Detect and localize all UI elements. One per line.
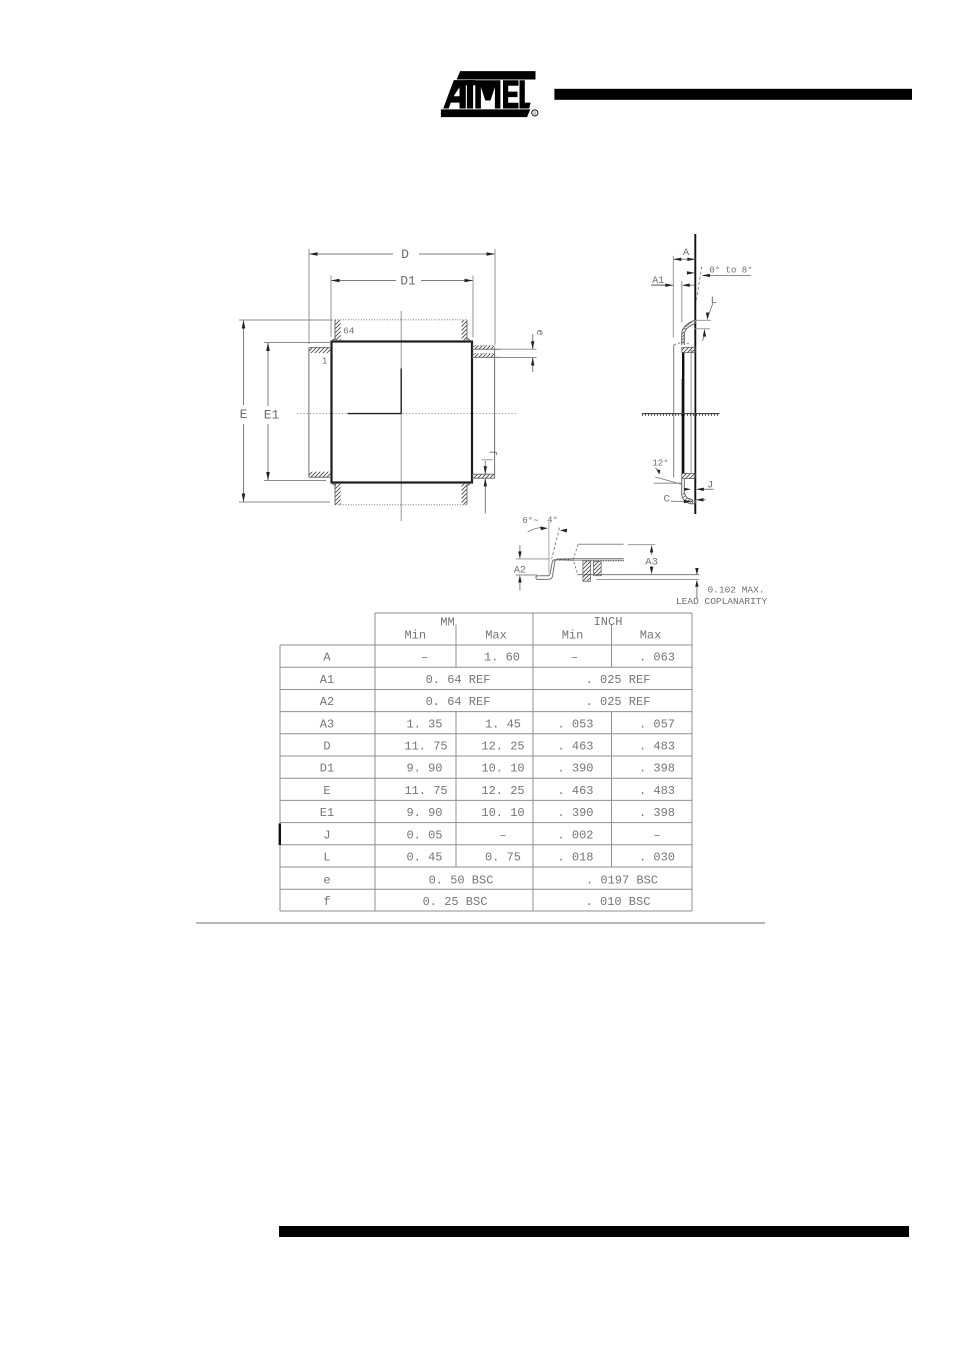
svg-text:1. 45: 1. 45 bbox=[485, 717, 521, 731]
svg-text:A2: A2 bbox=[514, 565, 526, 576]
svg-text:f: f bbox=[323, 895, 330, 909]
svg-text:A2: A2 bbox=[320, 695, 334, 709]
svg-text:e: e bbox=[323, 873, 330, 887]
svg-text:e: e bbox=[533, 329, 544, 335]
svg-text:0.102 MAX.: 0.102 MAX. bbox=[707, 584, 764, 595]
svg-text:9. 90: 9. 90 bbox=[406, 806, 442, 820]
svg-text:E: E bbox=[240, 407, 248, 422]
svg-text:A3: A3 bbox=[645, 557, 658, 569]
svg-text:. 030: . 030 bbox=[639, 851, 675, 865]
svg-text:0. 75: 0. 75 bbox=[485, 851, 521, 865]
svg-text:. 025 REF: . 025 REF bbox=[586, 673, 651, 687]
svg-text:0. 64 REF: 0. 64 REF bbox=[426, 695, 491, 709]
svg-text:MM: MM bbox=[440, 616, 454, 630]
svg-text:. 053: . 053 bbox=[557, 717, 593, 731]
svg-text:A3: A3 bbox=[320, 717, 334, 731]
svg-text:12. 25: 12. 25 bbox=[481, 784, 524, 798]
svg-text:L: L bbox=[711, 295, 717, 307]
svg-text:J: J bbox=[323, 828, 330, 842]
svg-text:. 483: . 483 bbox=[639, 740, 675, 754]
svg-text:f: f bbox=[486, 450, 498, 456]
svg-text:LEAD COPLANARITY: LEAD COPLANARITY bbox=[676, 596, 768, 607]
svg-text:–: – bbox=[499, 828, 506, 842]
svg-text:. 390: . 390 bbox=[557, 762, 593, 776]
svg-text:0. 50 BSC: 0. 50 BSC bbox=[429, 873, 494, 887]
svg-text:L: L bbox=[323, 851, 330, 865]
svg-text:. 463: . 463 bbox=[557, 740, 593, 754]
svg-text:Max: Max bbox=[640, 629, 662, 643]
svg-text:1: 1 bbox=[322, 356, 328, 367]
svg-text:0. 45: 0. 45 bbox=[406, 851, 442, 865]
svg-text:11. 75: 11. 75 bbox=[404, 740, 447, 754]
svg-text:A: A bbox=[683, 247, 690, 259]
svg-text:. 002: . 002 bbox=[557, 828, 593, 842]
svg-text:6°~: 6°~ bbox=[522, 516, 538, 526]
svg-text:E1: E1 bbox=[264, 408, 280, 423]
svg-text:C: C bbox=[663, 493, 669, 505]
svg-text:0° to 8°: 0° to 8° bbox=[709, 266, 752, 276]
svg-text:0. 05: 0. 05 bbox=[406, 828, 442, 842]
svg-text:. 390: . 390 bbox=[557, 806, 593, 820]
svg-text:. 057: . 057 bbox=[639, 717, 675, 731]
svg-text:10. 10: 10. 10 bbox=[481, 806, 524, 820]
svg-text:. 0197 BSC: . 0197 BSC bbox=[586, 873, 658, 887]
svg-text:64: 64 bbox=[343, 326, 355, 337]
svg-text:. 025 REF: . 025 REF bbox=[586, 695, 651, 709]
svg-text:E1: E1 bbox=[320, 806, 334, 820]
svg-text:. 398: . 398 bbox=[639, 762, 675, 776]
svg-text:10. 10: 10. 10 bbox=[481, 762, 524, 776]
svg-text:12. 25: 12. 25 bbox=[481, 740, 524, 754]
svg-text:–: – bbox=[421, 651, 428, 665]
svg-text:–: – bbox=[653, 828, 660, 842]
svg-text:Min: Min bbox=[562, 629, 584, 643]
svg-text:. 010 BSC: . 010 BSC bbox=[586, 895, 651, 909]
svg-text:A1: A1 bbox=[320, 673, 334, 687]
svg-text:12°: 12° bbox=[652, 459, 668, 469]
svg-text:D: D bbox=[323, 740, 330, 754]
svg-text:11. 75: 11. 75 bbox=[404, 784, 447, 798]
svg-text:INCH: INCH bbox=[594, 615, 623, 629]
svg-text:. 063: . 063 bbox=[639, 651, 675, 665]
svg-text:J: J bbox=[707, 479, 713, 491]
svg-text:. 018: . 018 bbox=[557, 851, 593, 865]
svg-text:A: A bbox=[323, 651, 331, 665]
svg-text:Min: Min bbox=[404, 629, 426, 643]
svg-text:1. 35: 1. 35 bbox=[406, 717, 442, 731]
svg-text:D1: D1 bbox=[320, 762, 334, 776]
svg-text:D: D bbox=[401, 247, 409, 262]
svg-text:E: E bbox=[323, 784, 330, 798]
svg-text:Max: Max bbox=[485, 629, 507, 643]
svg-text:9. 90: 9. 90 bbox=[406, 762, 442, 776]
svg-text:0. 25 BSC: 0. 25 BSC bbox=[423, 895, 488, 909]
svg-text:–: – bbox=[571, 651, 578, 665]
svg-text:. 398: . 398 bbox=[639, 806, 675, 820]
svg-text:1. 60: 1. 60 bbox=[484, 651, 520, 665]
svg-text:. 463: . 463 bbox=[557, 784, 593, 798]
svg-text:0. 64 REF: 0. 64 REF bbox=[426, 673, 491, 687]
svg-text:. 483: . 483 bbox=[639, 784, 675, 798]
svg-text:R: R bbox=[533, 111, 536, 117]
svg-text:D1: D1 bbox=[400, 274, 416, 289]
